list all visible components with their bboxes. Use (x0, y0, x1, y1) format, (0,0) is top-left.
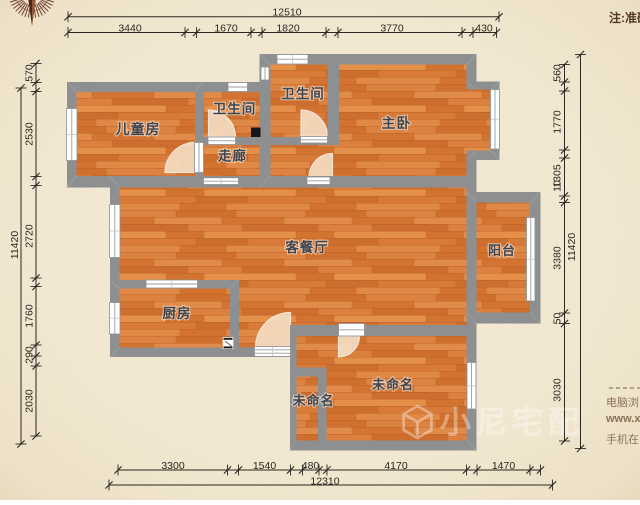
svg-text:3770: 3770 (380, 22, 404, 34)
svg-text:12510: 12510 (272, 7, 301, 19)
svg-text:480: 480 (302, 460, 320, 472)
svg-text:手机在: 手机在 (606, 432, 639, 446)
svg-text:290: 290 (24, 346, 36, 364)
svg-text:560: 560 (552, 64, 564, 82)
svg-text:未命名: 未命名 (291, 393, 334, 408)
svg-text:430: 430 (475, 22, 493, 34)
svg-text:1770: 1770 (552, 110, 564, 134)
svg-text:1540: 1540 (253, 460, 277, 472)
svg-text:走廊: 走廊 (218, 147, 247, 163)
svg-text:1470: 1470 (492, 460, 516, 472)
svg-text:3300: 3300 (161, 460, 185, 472)
svg-text:1670: 1670 (214, 22, 238, 34)
svg-text:主卧: 主卧 (382, 115, 412, 131)
svg-text:客餐厅: 客餐厅 (284, 239, 329, 255)
svg-text:卫生间: 卫生间 (281, 85, 325, 101)
svg-text:阳台: 阳台 (488, 243, 516, 258)
svg-text:小尼宅配: 小尼宅配 (440, 405, 584, 440)
svg-text:电脑浏览: 电脑浏览 (606, 395, 640, 409)
svg-text:1820: 1820 (276, 22, 300, 34)
svg-text:3380: 3380 (552, 246, 564, 270)
svg-text:注:准确: 注:准确 (609, 10, 640, 25)
svg-text:570: 570 (24, 64, 36, 82)
svg-text:3030: 3030 (552, 378, 564, 402)
svg-text:卫生间: 卫生间 (213, 100, 257, 116)
svg-text:2030: 2030 (24, 389, 36, 413)
svg-text:2720: 2720 (24, 224, 36, 248)
svg-text:10: 10 (552, 180, 564, 192)
svg-text:4170: 4170 (384, 460, 408, 472)
svg-text:未命名: 未命名 (371, 377, 414, 392)
svg-text:11420: 11420 (9, 231, 21, 260)
svg-text:3440: 3440 (118, 22, 142, 34)
svg-text:1760: 1760 (24, 304, 36, 328)
svg-text:2530: 2530 (24, 122, 36, 146)
svg-text:12310: 12310 (310, 475, 339, 487)
svg-text:50: 50 (552, 313, 564, 325)
svg-text:www.x: www.x (605, 413, 640, 425)
svg-text:11420: 11420 (566, 233, 578, 262)
svg-text:厨房: 厨房 (163, 305, 192, 321)
svg-text:儿童房: 儿童房 (115, 121, 161, 137)
